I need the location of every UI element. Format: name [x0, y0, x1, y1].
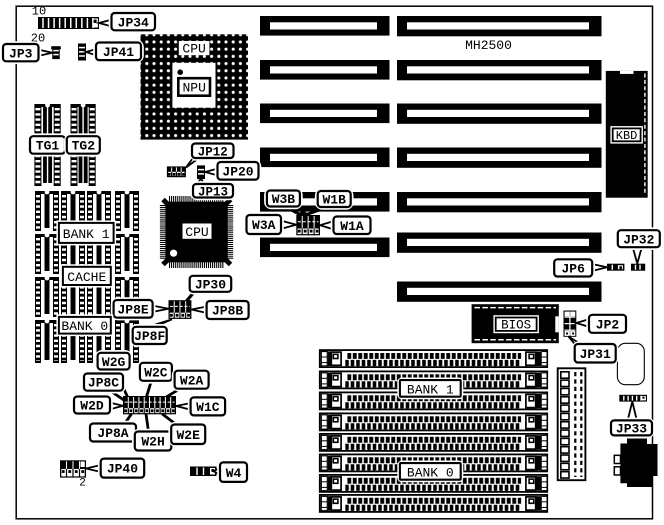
svg-text:JP33: JP33 [616, 422, 647, 437]
svg-text:JP30: JP30 [195, 277, 226, 292]
svg-text:CPU: CPU [182, 41, 205, 56]
svg-text:JP6: JP6 [561, 262, 585, 277]
svg-text:W1A: W1A [340, 219, 364, 234]
svg-text:W2G: W2G [102, 355, 126, 370]
svg-text:W2D: W2D [80, 399, 104, 414]
svg-text:JP31: JP31 [580, 347, 611, 362]
svg-text:2: 2 [79, 478, 86, 490]
svg-text:W3A: W3A [252, 218, 276, 233]
svg-text:JP20: JP20 [222, 164, 253, 179]
svg-text:BANK 0: BANK 0 [61, 319, 108, 334]
svg-text:JP8C: JP8C [88, 376, 119, 391]
svg-text:W2E: W2E [176, 428, 200, 443]
svg-text:BIOS: BIOS [501, 318, 531, 332]
svg-text:JP8E: JP8E [117, 302, 148, 317]
svg-text:BANK 1: BANK 1 [63, 227, 110, 242]
svg-text:BANK 1: BANK 1 [407, 382, 454, 397]
svg-text:W2H: W2H [141, 435, 164, 450]
svg-text:MH2500: MH2500 [465, 38, 512, 53]
svg-text:CPU: CPU [185, 225, 208, 240]
svg-text:JP8B: JP8B [212, 304, 243, 319]
svg-text:BANK 0: BANK 0 [407, 465, 454, 480]
svg-text:W1C: W1C [196, 400, 220, 415]
svg-text:JP3: JP3 [9, 46, 33, 61]
svg-text:KBD: KBD [616, 129, 638, 143]
svg-text:NPU: NPU [182, 81, 205, 96]
svg-text:JP12: JP12 [198, 145, 228, 159]
svg-text:10: 10 [32, 5, 46, 19]
svg-text:W2A: W2A [180, 373, 204, 388]
svg-text:JP41: JP41 [103, 45, 134, 60]
svg-text:JP8A: JP8A [97, 426, 128, 441]
svg-text:CACHE: CACHE [67, 270, 106, 285]
svg-text:JP13: JP13 [198, 185, 228, 199]
svg-text:W1B: W1B [322, 193, 346, 208]
svg-text:JP32: JP32 [623, 232, 654, 247]
svg-text:W4: W4 [226, 466, 242, 481]
svg-text:JP8F: JP8F [134, 329, 165, 344]
svg-text:JP2: JP2 [596, 317, 620, 332]
svg-text:TG1: TG1 [36, 139, 60, 154]
svg-text:JP34: JP34 [118, 15, 149, 30]
svg-text:TG2: TG2 [72, 139, 96, 154]
svg-text:W2C: W2C [144, 365, 168, 380]
svg-text:JP40: JP40 [107, 462, 138, 477]
svg-text:W3B: W3B [272, 192, 296, 207]
